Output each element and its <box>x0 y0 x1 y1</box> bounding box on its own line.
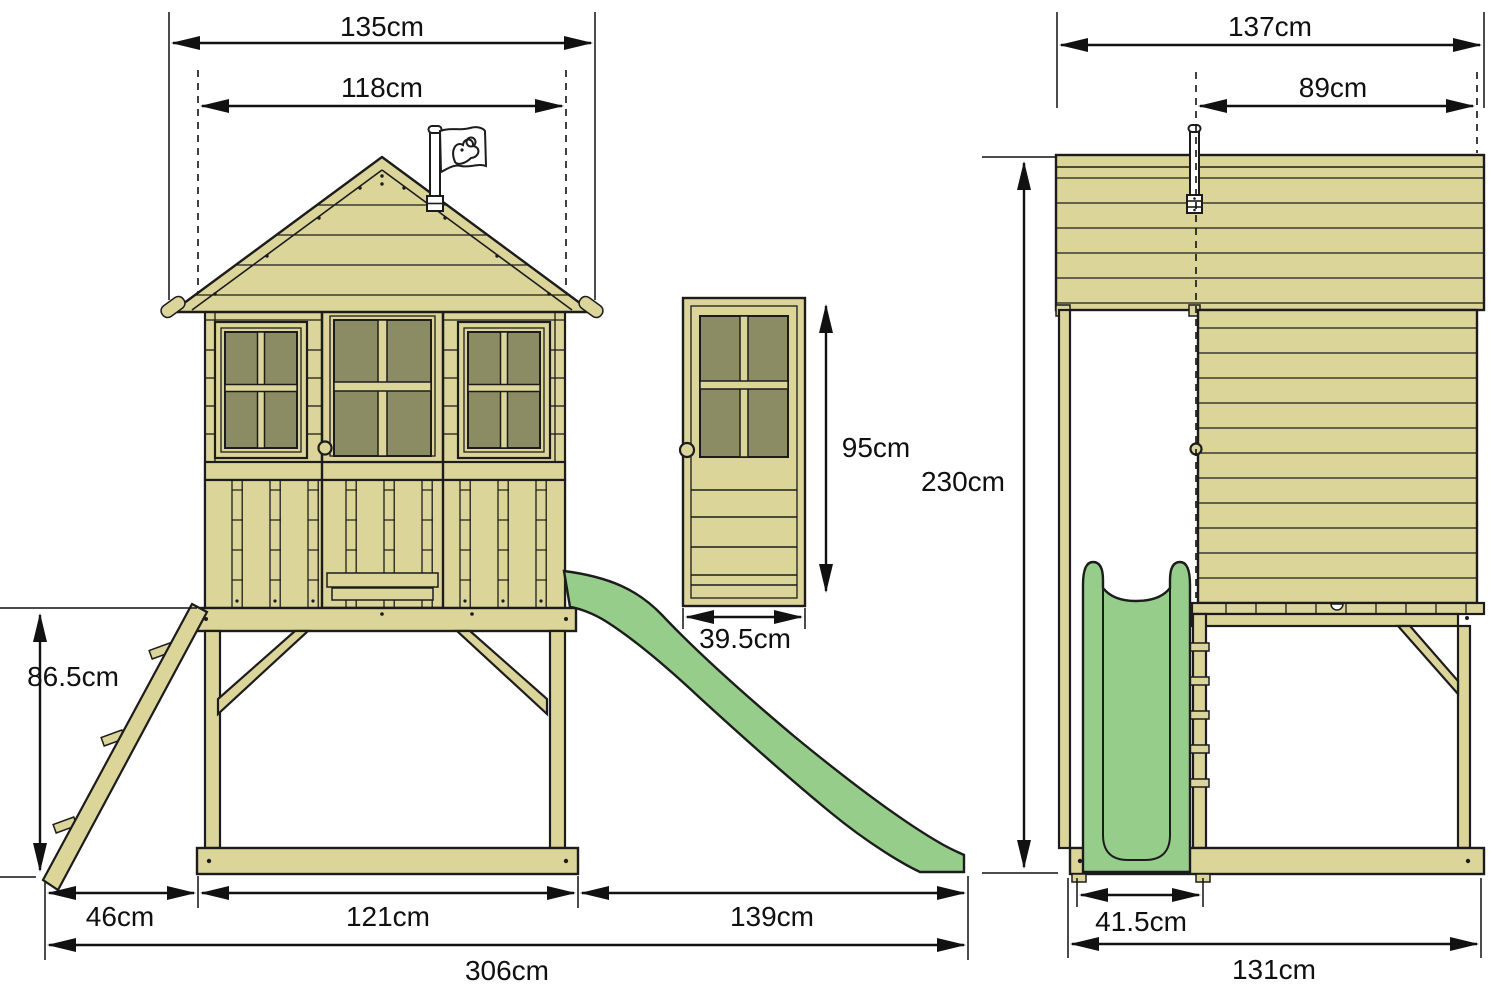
dim-total-width: 306cm <box>49 945 964 986</box>
leg-left <box>205 631 220 848</box>
dim-label-base-width: 121cm <box>346 901 430 932</box>
balustrade-rail <box>205 462 565 480</box>
dim-label-roof-width: 135cm <box>340 11 424 42</box>
side-leg <box>1458 626 1470 848</box>
deck-rail <box>1192 614 1458 626</box>
slide-foot-left <box>1072 874 1086 882</box>
window-left <box>215 322 307 458</box>
dim-ladder-span: 46cm <box>49 893 194 932</box>
playhouse-side <box>1056 125 1484 882</box>
front-view: 135cm 118cm 86.5cm 46cm <box>0 11 968 986</box>
playhouse-front <box>43 126 605 890</box>
base-skid <box>197 848 578 874</box>
dim-label-ladder-span: 46cm <box>86 901 154 932</box>
flag-pole <box>430 130 440 196</box>
slide-front <box>1083 562 1190 872</box>
flag <box>427 126 486 211</box>
porch-post <box>1059 310 1070 848</box>
leg-right <box>550 631 565 848</box>
dim-label-body-width: 118cm <box>341 72 423 103</box>
dim-door-height: 95cm <box>826 306 910 591</box>
dim-label-platform-height: 86.5cm <box>27 661 119 692</box>
dim-label-door-width: 39.5cm <box>699 623 791 654</box>
dim-base-depth: 131cm <box>1072 944 1477 985</box>
dim-label-door-height: 95cm <box>842 432 910 463</box>
ladder-rail <box>43 604 207 890</box>
window-right <box>458 322 550 458</box>
platform-beam <box>197 608 576 631</box>
dim-slide-span: 139cm <box>582 893 964 932</box>
door-knob <box>319 442 332 455</box>
deck-notch <box>1331 604 1343 610</box>
roof-eave-right <box>577 294 606 320</box>
roof-gable <box>159 157 606 320</box>
brace-right <box>457 631 547 714</box>
roof-eave-left <box>159 294 188 320</box>
side-brace <box>1398 626 1458 694</box>
dim-roof-depth: 137cm <box>1057 11 1484 108</box>
slide-post <box>1190 614 1209 848</box>
door-detail-drawing <box>680 298 805 606</box>
dim-label-slide-width: 41.5cm <box>1095 906 1187 937</box>
dim-side-bottom-row: 41.5cm 131cm <box>1068 878 1481 985</box>
dim-base-width: 121cm <box>202 893 574 932</box>
dim-label-slide-span: 139cm <box>730 901 814 932</box>
dim-label-base-depth: 131cm <box>1232 954 1316 985</box>
dim-bottom-row: 46cm 121cm 139cm 306cm <box>45 876 968 986</box>
dim-door-width: 39.5cm <box>683 608 805 654</box>
door-detail: 95cm 39.5cm <box>680 298 910 654</box>
access-ladder <box>43 604 207 890</box>
deck <box>1192 603 1484 614</box>
side-roof <box>1056 155 1484 316</box>
side-flag-pole <box>1187 125 1202 213</box>
dim-slide-width: 41.5cm <box>1081 895 1199 937</box>
side-view: 137cm 89cm 230cm 41.5cm <box>921 11 1484 985</box>
door-detail-knob <box>680 443 694 457</box>
dim-label-roof-depth: 137cm <box>1228 11 1312 42</box>
dim-label-total-height: 230cm <box>921 466 1005 497</box>
brace-left <box>218 631 308 714</box>
dim-total-height: 230cm <box>921 157 1058 873</box>
dim-label-total-width: 306cm <box>465 955 549 986</box>
dim-label-wall-depth: 89cm <box>1299 72 1367 103</box>
side-wall <box>1191 310 1478 603</box>
playhouse-dimension-drawing: 135cm 118cm 86.5cm 46cm <box>0 0 1500 997</box>
door-threshold <box>327 573 438 587</box>
